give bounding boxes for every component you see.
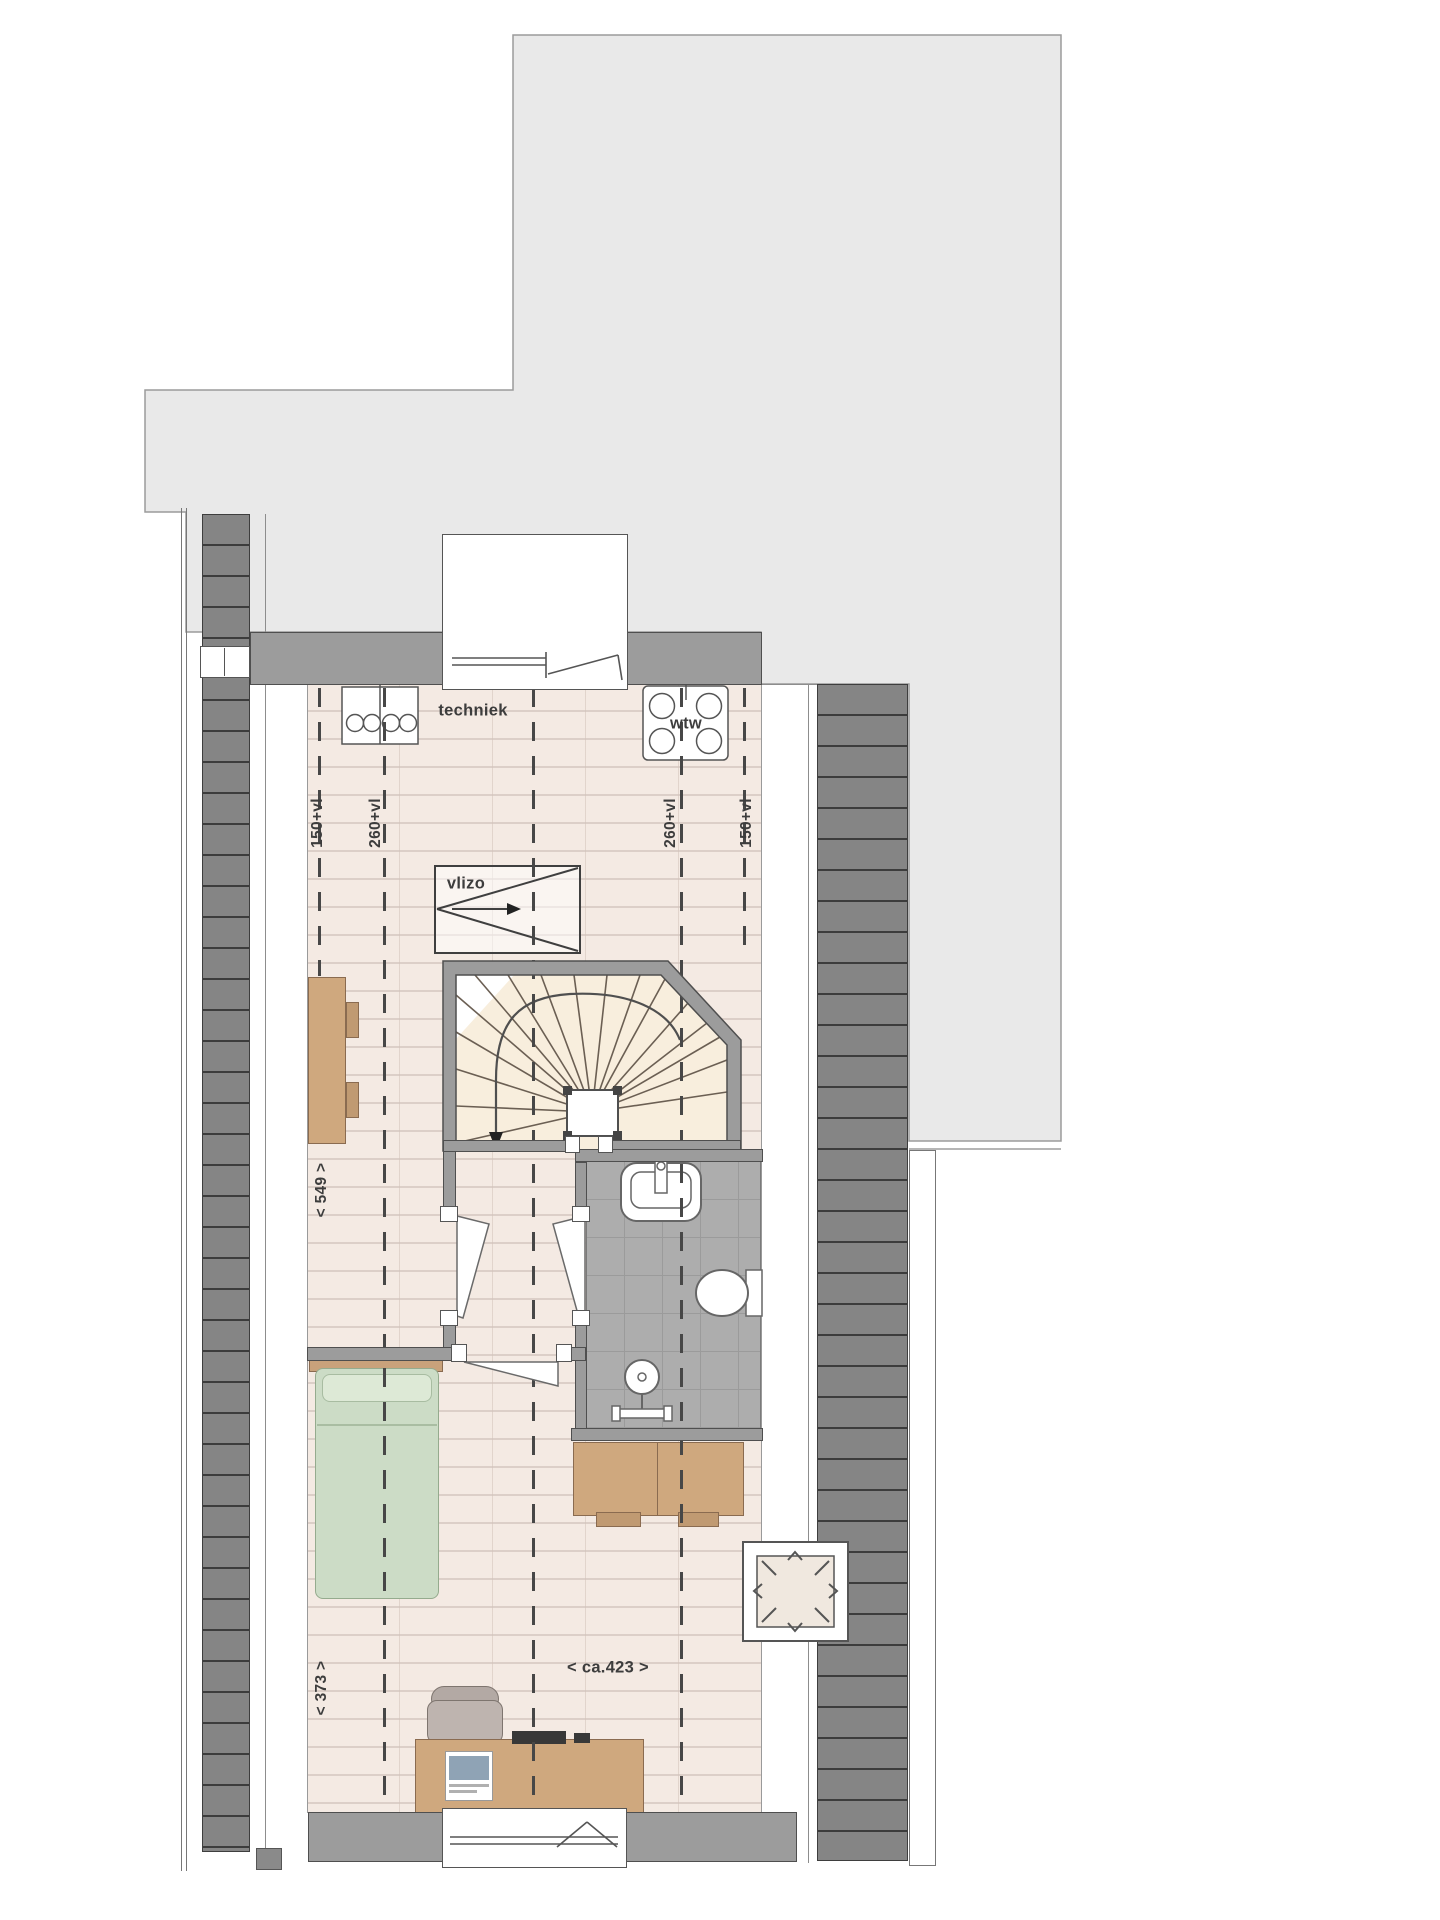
label-dim-150-right: 150+vl (738, 798, 756, 848)
door-post (440, 1310, 458, 1326)
label-dim-ca423: < ca.423 > (567, 1659, 649, 1678)
door-post (572, 1206, 590, 1222)
label-dim-260-left: 260+vl (367, 798, 385, 848)
label-dim-260-right: 260+vl (662, 798, 680, 848)
label-dim-549: < 549 > (313, 1163, 331, 1218)
window-details-layer (0, 0, 1440, 1920)
label-techniek: techniek (438, 702, 507, 721)
stairwell-post (565, 1136, 580, 1153)
door-post (572, 1310, 590, 1326)
door-post (556, 1344, 572, 1362)
label-dim-150-left: 150+vl (309, 798, 327, 848)
floor-plan-page: techniek wtw vlizo 150+vl 260+vl 260+vl … (0, 0, 1440, 1920)
door-leaf-bathroom (553, 1216, 585, 1318)
stairwell-post (598, 1136, 613, 1153)
door-leaf-west (457, 1216, 489, 1318)
label-vlizo: vlizo (447, 875, 485, 894)
door-post (451, 1344, 467, 1362)
label-dim-373: < 373 > (313, 1661, 331, 1716)
dormer-window-glazing (452, 652, 622, 680)
bottom-window-glazing (450, 1822, 618, 1847)
label-wtw: wtw (670, 715, 702, 734)
door-post (440, 1206, 458, 1222)
door-leaf-bedroom (464, 1362, 558, 1386)
